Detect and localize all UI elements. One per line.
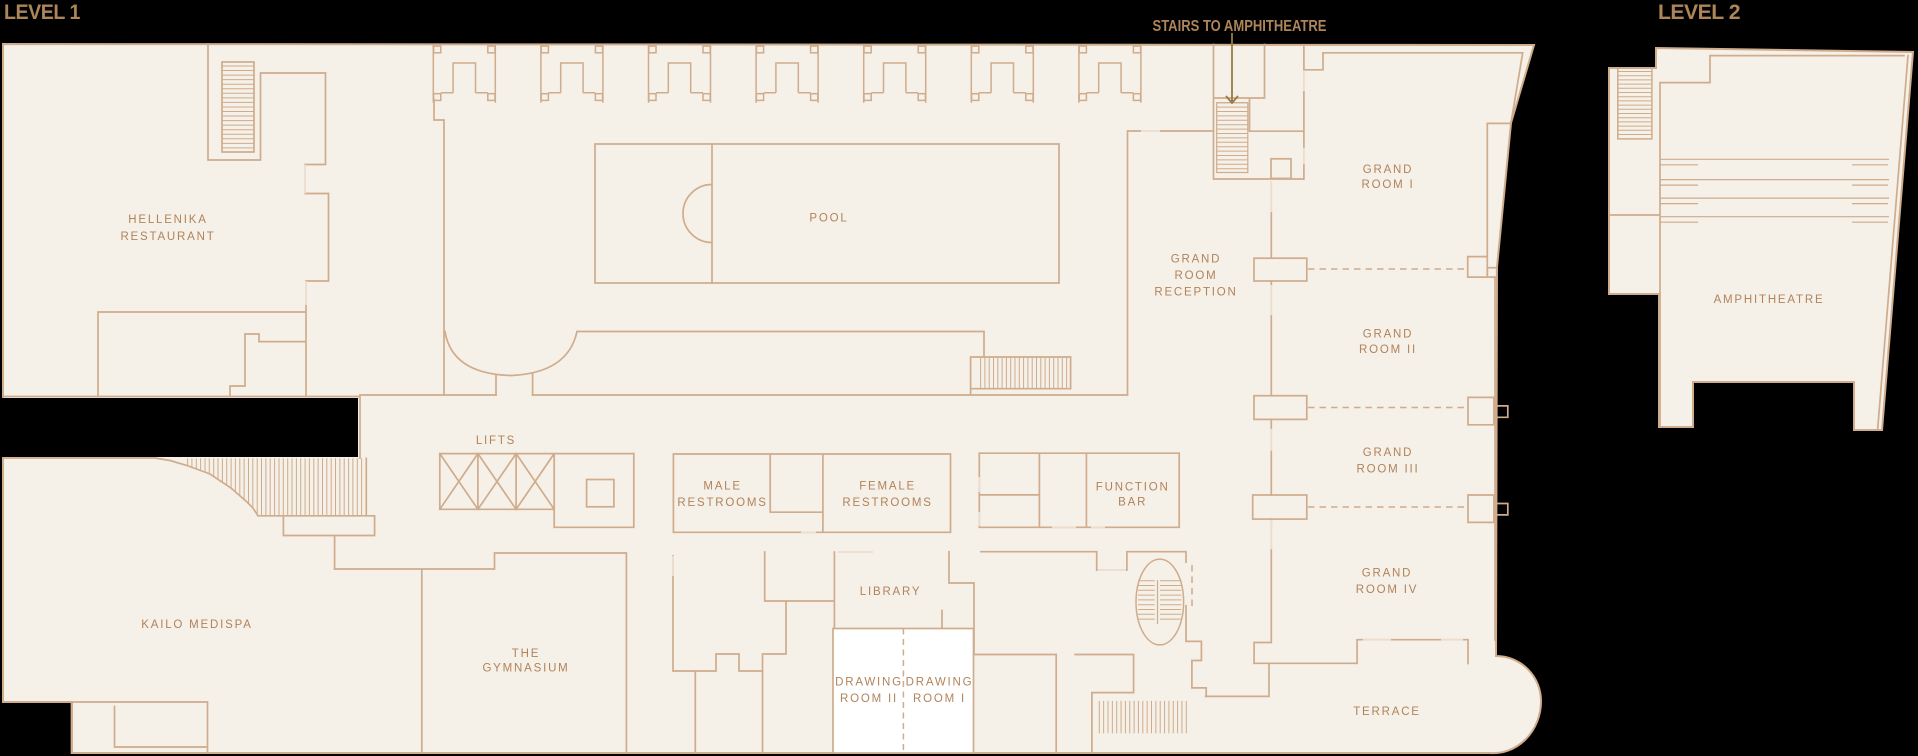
svg-text:DRAWING: DRAWING (835, 677, 903, 689)
svg-text:GRAND: GRAND (1363, 329, 1414, 341)
svg-text:ROOM II: ROOM II (1359, 344, 1417, 356)
svg-text:GRAND: GRAND (1171, 254, 1222, 266)
svg-text:RESTROOMS: RESTROOMS (677, 497, 767, 509)
svg-text:GRAND: GRAND (1363, 447, 1414, 459)
svg-text:RESTAURANT: RESTAURANT (120, 231, 215, 243)
svg-text:ROOM: ROOM (1175, 270, 1218, 282)
svg-text:KAILO MEDISPA: KAILO MEDISPA (141, 619, 252, 631)
svg-text:ROOM III: ROOM III (1357, 464, 1420, 476)
svg-text:AMPHITHEATRE: AMPHITHEATRE (1714, 294, 1825, 306)
svg-text:ROOM I: ROOM I (913, 693, 966, 705)
svg-text:FEMALE: FEMALE (859, 481, 916, 493)
svg-text:GYMNASIUM: GYMNASIUM (482, 663, 569, 675)
svg-text:LIFTS: LIFTS (476, 435, 516, 447)
svg-text:GRAND: GRAND (1362, 568, 1413, 580)
svg-text:RESTROOMS: RESTROOMS (842, 497, 932, 509)
svg-text:POOL: POOL (809, 213, 848, 225)
svg-text:TERRACE: TERRACE (1353, 706, 1421, 718)
svg-text:STAIRS TO AMPHITHEATRE: STAIRS TO AMPHITHEATRE (1153, 18, 1327, 35)
svg-text:LEVEL 2: LEVEL 2 (1658, 1, 1740, 24)
svg-text:BAR: BAR (1118, 497, 1147, 509)
svg-text:ROOM IV: ROOM IV (1356, 584, 1418, 596)
svg-text:ROOM II: ROOM II (840, 693, 898, 705)
svg-text:LEVEL 1: LEVEL 1 (4, 1, 81, 24)
svg-text:MALE: MALE (703, 481, 742, 493)
svg-text:THE: THE (512, 648, 540, 660)
svg-text:GRAND: GRAND (1363, 164, 1414, 176)
svg-text:RECEPTION: RECEPTION (1154, 287, 1237, 299)
svg-text:HELLENIKA: HELLENIKA (128, 214, 207, 226)
svg-text:LIBRARY: LIBRARY (860, 586, 922, 598)
svg-text:ROOM I: ROOM I (1362, 179, 1415, 191)
svg-text:FUNCTION: FUNCTION (1096, 482, 1170, 494)
svg-text:DRAWING: DRAWING (906, 677, 974, 689)
